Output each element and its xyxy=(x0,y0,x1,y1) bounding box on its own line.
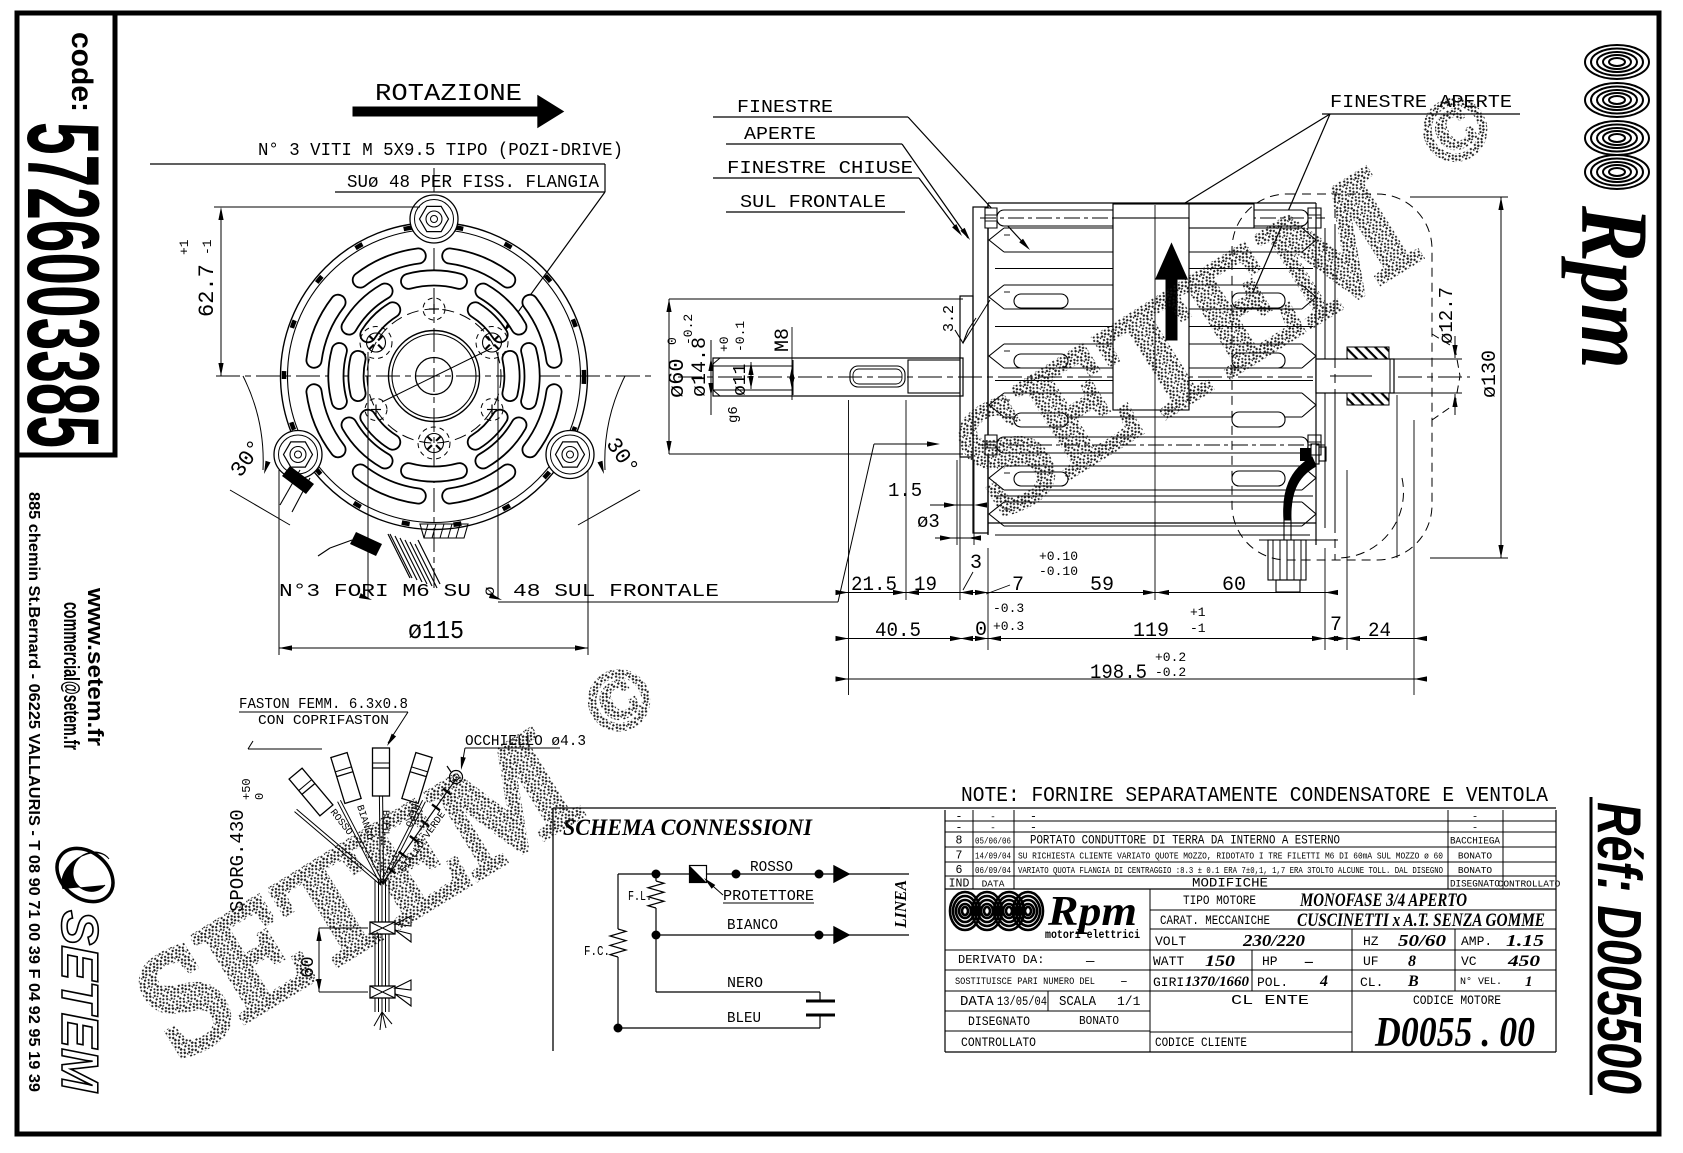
svg-text:05/06/06: 05/06/06 xyxy=(975,836,1011,847)
svg-text:-1: -1 xyxy=(200,239,215,255)
svg-text:D0055 . 00: D0055 . 00 xyxy=(1374,1010,1535,1056)
svg-text:SU RICHIESTA CLIENTE VARIATO Q: SU RICHIESTA CLIENTE VARIATO QUOTE MOZZO… xyxy=(1018,851,1443,862)
svg-text:F.L.: F.L. xyxy=(628,890,652,905)
svg-text:BONATO: BONATO xyxy=(1458,865,1493,876)
svg-text:ø: ø xyxy=(481,586,499,596)
svg-text:-0.2: -0.2 xyxy=(1155,665,1186,680)
svg-text:-1: -1 xyxy=(1190,621,1206,636)
svg-text:N°3 FORI M6 SU: N°3 FORI M6 SU xyxy=(279,582,471,602)
svg-text:SUø 48 PER FISS. FLANGIA: SUø 48 PER FISS. FLANGIA xyxy=(347,173,599,193)
svg-text:CL.: CL. xyxy=(1360,975,1383,990)
svg-text:Rpm: Rpm xyxy=(1561,205,1668,369)
svg-text:motori elettrici: motori elettrici xyxy=(1045,928,1140,942)
svg-text:+0.2: +0.2 xyxy=(1155,650,1186,665)
svg-text:ø130: ø130 xyxy=(1479,350,1502,398)
svg-text:CONTROLLATO: CONTROLLATO xyxy=(1498,879,1561,890)
svg-text:7: 7 xyxy=(1330,614,1342,637)
svg-text:HP: HP xyxy=(1262,954,1278,969)
svg-text:CODICE CLIENTE: CODICE CLIENTE xyxy=(1155,1035,1247,1050)
svg-text:ROTAZIONE: ROTAZIONE xyxy=(375,81,522,108)
svg-text:1: 1 xyxy=(1525,974,1533,990)
svg-text:62.7: 62.7 xyxy=(195,264,220,317)
svg-text:7: 7 xyxy=(956,850,963,863)
svg-text:14/09/04: 14/09/04 xyxy=(975,851,1011,862)
svg-text:ø14.8: ø14.8 xyxy=(689,337,712,397)
svg-text:-0.10: -0.10 xyxy=(1039,564,1078,579)
svg-text:HZ: HZ xyxy=(1363,934,1379,949)
svg-text:DATA: DATA xyxy=(960,994,994,1010)
svg-text:40.5: 40.5 xyxy=(875,620,921,643)
svg-text:-: - xyxy=(990,812,996,823)
svg-text:-: - xyxy=(990,823,996,834)
svg-text:–: – xyxy=(1304,953,1313,970)
svg-text:NOTE: FORNIRE SEPARATAMENTE CO: NOTE: FORNIRE SEPARATAMENTE CONDENSATORE… xyxy=(961,785,1548,808)
svg-text:+0.3: +0.3 xyxy=(993,619,1024,634)
svg-text:ø115: ø115 xyxy=(408,616,464,646)
svg-text:6: 6 xyxy=(956,864,963,877)
svg-text:CL ENTE: CL ENTE xyxy=(1231,993,1309,1009)
svg-text:FINESTRE CHIUSE: FINESTRE CHIUSE xyxy=(727,159,913,179)
svg-text:CARAT. MECCANICHE: CARAT. MECCANICHE xyxy=(1160,913,1270,928)
svg-text:AMP.: AMP. xyxy=(1461,934,1492,949)
svg-text:ø3: ø3 xyxy=(917,511,940,533)
svg-text:885 chemin St.Bernard - 0622: 885 chemin St.Bernard - 06225 VALLAURIS … xyxy=(25,492,42,1092)
svg-text:CON COPRIFASTON: CON COPRIFASTON xyxy=(258,713,389,729)
svg-text:BACCHIEGA: BACCHIEGA xyxy=(1450,836,1501,848)
svg-text:—: — xyxy=(1085,954,1095,970)
svg-text:WATT: WATT xyxy=(1153,954,1184,969)
svg-text:N° 3 VITI M 5X9.5 TIPO (POZI-D: N° 3 VITI M 5X9.5 TIPO (POZI-DRIVE) xyxy=(258,141,623,161)
svg-text:MONOFASE 3/4 APERTO: MONOFASE 3/4 APERTO xyxy=(1299,890,1467,911)
svg-text:SETEM: SETEM xyxy=(50,910,108,1094)
svg-text:www.setem.fr: www.setem.fr xyxy=(83,587,108,747)
svg-text:ø12.7: ø12.7 xyxy=(1436,287,1458,344)
svg-text:7: 7 xyxy=(1012,574,1024,597)
svg-text:SCALA: SCALA xyxy=(1059,994,1097,1010)
svg-text:+1: +1 xyxy=(177,239,192,255)
svg-text:+0.10: +0.10 xyxy=(1039,549,1078,564)
svg-text:BLEU: BLEU xyxy=(727,1010,761,1027)
svg-text:CONTROLLATO: CONTROLLATO xyxy=(961,1035,1036,1050)
svg-text:Réf: D005500: Réf: D005500 xyxy=(1584,802,1653,1094)
svg-text:21.5: 21.5 xyxy=(851,574,897,597)
svg-text:VOLT: VOLT xyxy=(1155,934,1186,949)
svg-text:150: 150 xyxy=(1205,953,1235,970)
svg-text:19: 19 xyxy=(914,574,937,597)
svg-text:+1: +1 xyxy=(1190,605,1206,620)
svg-text:F.C.: F.C. xyxy=(584,945,610,960)
svg-text:+0: +0 xyxy=(717,336,732,352)
svg-text:60: 60 xyxy=(1222,574,1246,597)
svg-text:198.5: 198.5 xyxy=(1090,662,1147,685)
svg-text:-: - xyxy=(956,822,963,835)
svg-text:SOSTITUISCE PARI NUMERO DEL: SOSTITUISCE PARI NUMERO DEL xyxy=(955,976,1095,988)
svg-text:NERO: NERO xyxy=(727,975,763,992)
svg-text:1.15: 1.15 xyxy=(1506,931,1545,950)
svg-text:POL.: POL. xyxy=(1257,975,1288,990)
svg-text:119: 119 xyxy=(1133,620,1169,643)
svg-text:3.2: 3.2 xyxy=(941,305,958,332)
svg-text:230/220: 230/220 xyxy=(1242,931,1306,950)
svg-text:code:: code: xyxy=(65,32,98,112)
svg-text:0: 0 xyxy=(253,793,267,800)
svg-text:CODICE MOTORE: CODICE MOTORE xyxy=(1413,993,1501,1008)
svg-text:0: 0 xyxy=(665,337,680,345)
svg-text:UF: UF xyxy=(1363,954,1379,969)
svg-text:1.5: 1.5 xyxy=(888,480,922,502)
svg-text:1370/1660: 1370/1660 xyxy=(1185,974,1249,990)
svg-text:-: - xyxy=(1472,823,1478,835)
svg-text:CUSCINETTI x A.T. SENZA GOMME: CUSCINETTI x A.T. SENZA GOMME xyxy=(1297,910,1545,931)
svg-text:g6: g6 xyxy=(726,406,742,423)
svg-text:ROSSO: ROSSO xyxy=(750,859,793,876)
svg-text:8: 8 xyxy=(1408,953,1416,970)
svg-text:FINESTRE: FINESTRE xyxy=(737,98,833,118)
svg-text:DATA: DATA xyxy=(982,879,1005,890)
svg-text:VARIATO QUOTA FLANGIA DI CENTR: VARIATO QUOTA FLANGIA DI CENTRAGGIO :8.3… xyxy=(1018,865,1443,876)
svg-text:8: 8 xyxy=(956,835,963,848)
svg-text:ø60: ø60 xyxy=(665,358,690,398)
svg-text:PORTATO CONDUTTORE DI TERRA DA: PORTATO CONDUTTORE DI TERRA DA INTERNO A… xyxy=(1030,834,1340,848)
svg-text:N° VEL.: N° VEL. xyxy=(1460,976,1502,988)
svg-text:GIRI: GIRI xyxy=(1153,975,1184,990)
svg-text:SUL FRONTALE: SUL FRONTALE xyxy=(740,193,886,213)
svg-text:-0.3: -0.3 xyxy=(993,601,1024,616)
svg-text:B: B xyxy=(1407,973,1419,990)
svg-text:3: 3 xyxy=(970,552,982,575)
svg-text:+50: +50 xyxy=(240,778,254,800)
svg-text:ø11: ø11 xyxy=(731,364,751,396)
svg-text:1/1: 1/1 xyxy=(1117,994,1141,1009)
svg-text:48 SUL FRONTALE: 48 SUL FRONTALE xyxy=(513,582,719,602)
svg-text:–: – xyxy=(1120,974,1128,989)
svg-text:BIANCO: BIANCO xyxy=(727,917,778,934)
svg-text:-0.1: -0.1 xyxy=(733,321,748,352)
svg-text:0: 0 xyxy=(975,619,987,642)
svg-text:FASTON FEMM. 6.3x0.8: FASTON FEMM. 6.3x0.8 xyxy=(239,696,408,713)
svg-text:BONATO: BONATO xyxy=(1079,1014,1119,1028)
svg-text:59: 59 xyxy=(1090,574,1114,597)
svg-text:TIPO MOTORE: TIPO MOTORE xyxy=(1183,893,1256,908)
svg-text:DERIVATO DA:: DERIVATO DA: xyxy=(958,953,1044,967)
svg-text:DISEGNATO: DISEGNATO xyxy=(968,1014,1030,1029)
svg-text:SCHEMA CONNESSIONI: SCHEMA CONNESSIONI xyxy=(563,815,813,840)
svg-text:450: 450 xyxy=(1507,953,1540,970)
svg-text:commercial@setem.fr: commercial@setem.fr xyxy=(59,602,84,750)
svg-text:4: 4 xyxy=(1319,973,1328,990)
svg-text:VC: VC xyxy=(1461,954,1477,969)
svg-text:BONATO: BONATO xyxy=(1458,851,1493,862)
svg-text:50/60: 50/60 xyxy=(1398,931,1447,950)
svg-text:06/09/04: 06/09/04 xyxy=(975,865,1011,876)
svg-text:24: 24 xyxy=(1368,620,1391,643)
svg-text:LINEA: LINEA xyxy=(891,880,910,929)
svg-text:5726003385: 5726003385 xyxy=(6,122,120,448)
svg-text:13/05/04: 13/05/04 xyxy=(997,994,1047,1009)
svg-text:APERTE: APERTE xyxy=(744,125,816,145)
